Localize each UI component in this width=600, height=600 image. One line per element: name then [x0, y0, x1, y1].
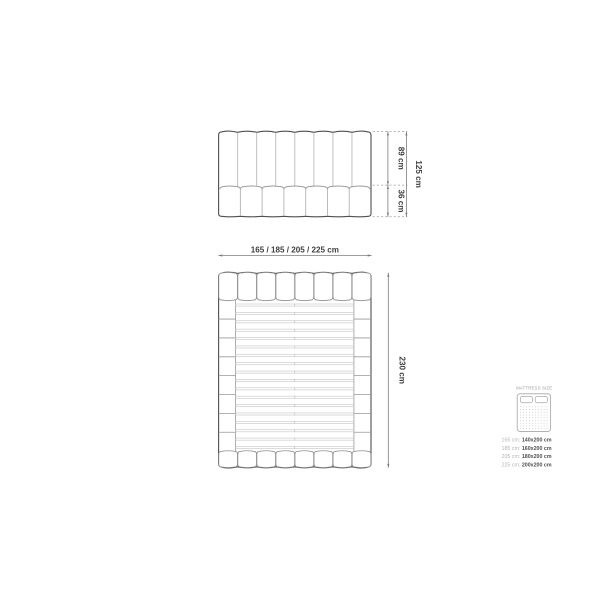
svg-text:165 / 185 / 205 / 225 cm: 165 / 185 / 205 / 225 cm: [251, 245, 339, 254]
svg-text:230 cm: 230 cm: [397, 356, 406, 383]
svg-text:165 cm: 140x200 cm: 165 cm: 140x200 cm: [502, 438, 552, 444]
svg-text:89 cm: 89 cm: [397, 147, 406, 170]
svg-text:125 cm: 125 cm: [414, 160, 423, 187]
svg-text:MATTRESS SIZE: MATTRESS SIZE: [516, 385, 552, 390]
svg-text:36 cm: 36 cm: [397, 190, 406, 213]
svg-text:225 cm: 200x200 cm: 225 cm: 200x200 cm: [502, 462, 552, 468]
svg-text:205 cm: 180x200 cm: 205 cm: 180x200 cm: [502, 454, 552, 460]
svg-text:185 cm: 160x200 cm: 185 cm: 160x200 cm: [502, 446, 552, 452]
